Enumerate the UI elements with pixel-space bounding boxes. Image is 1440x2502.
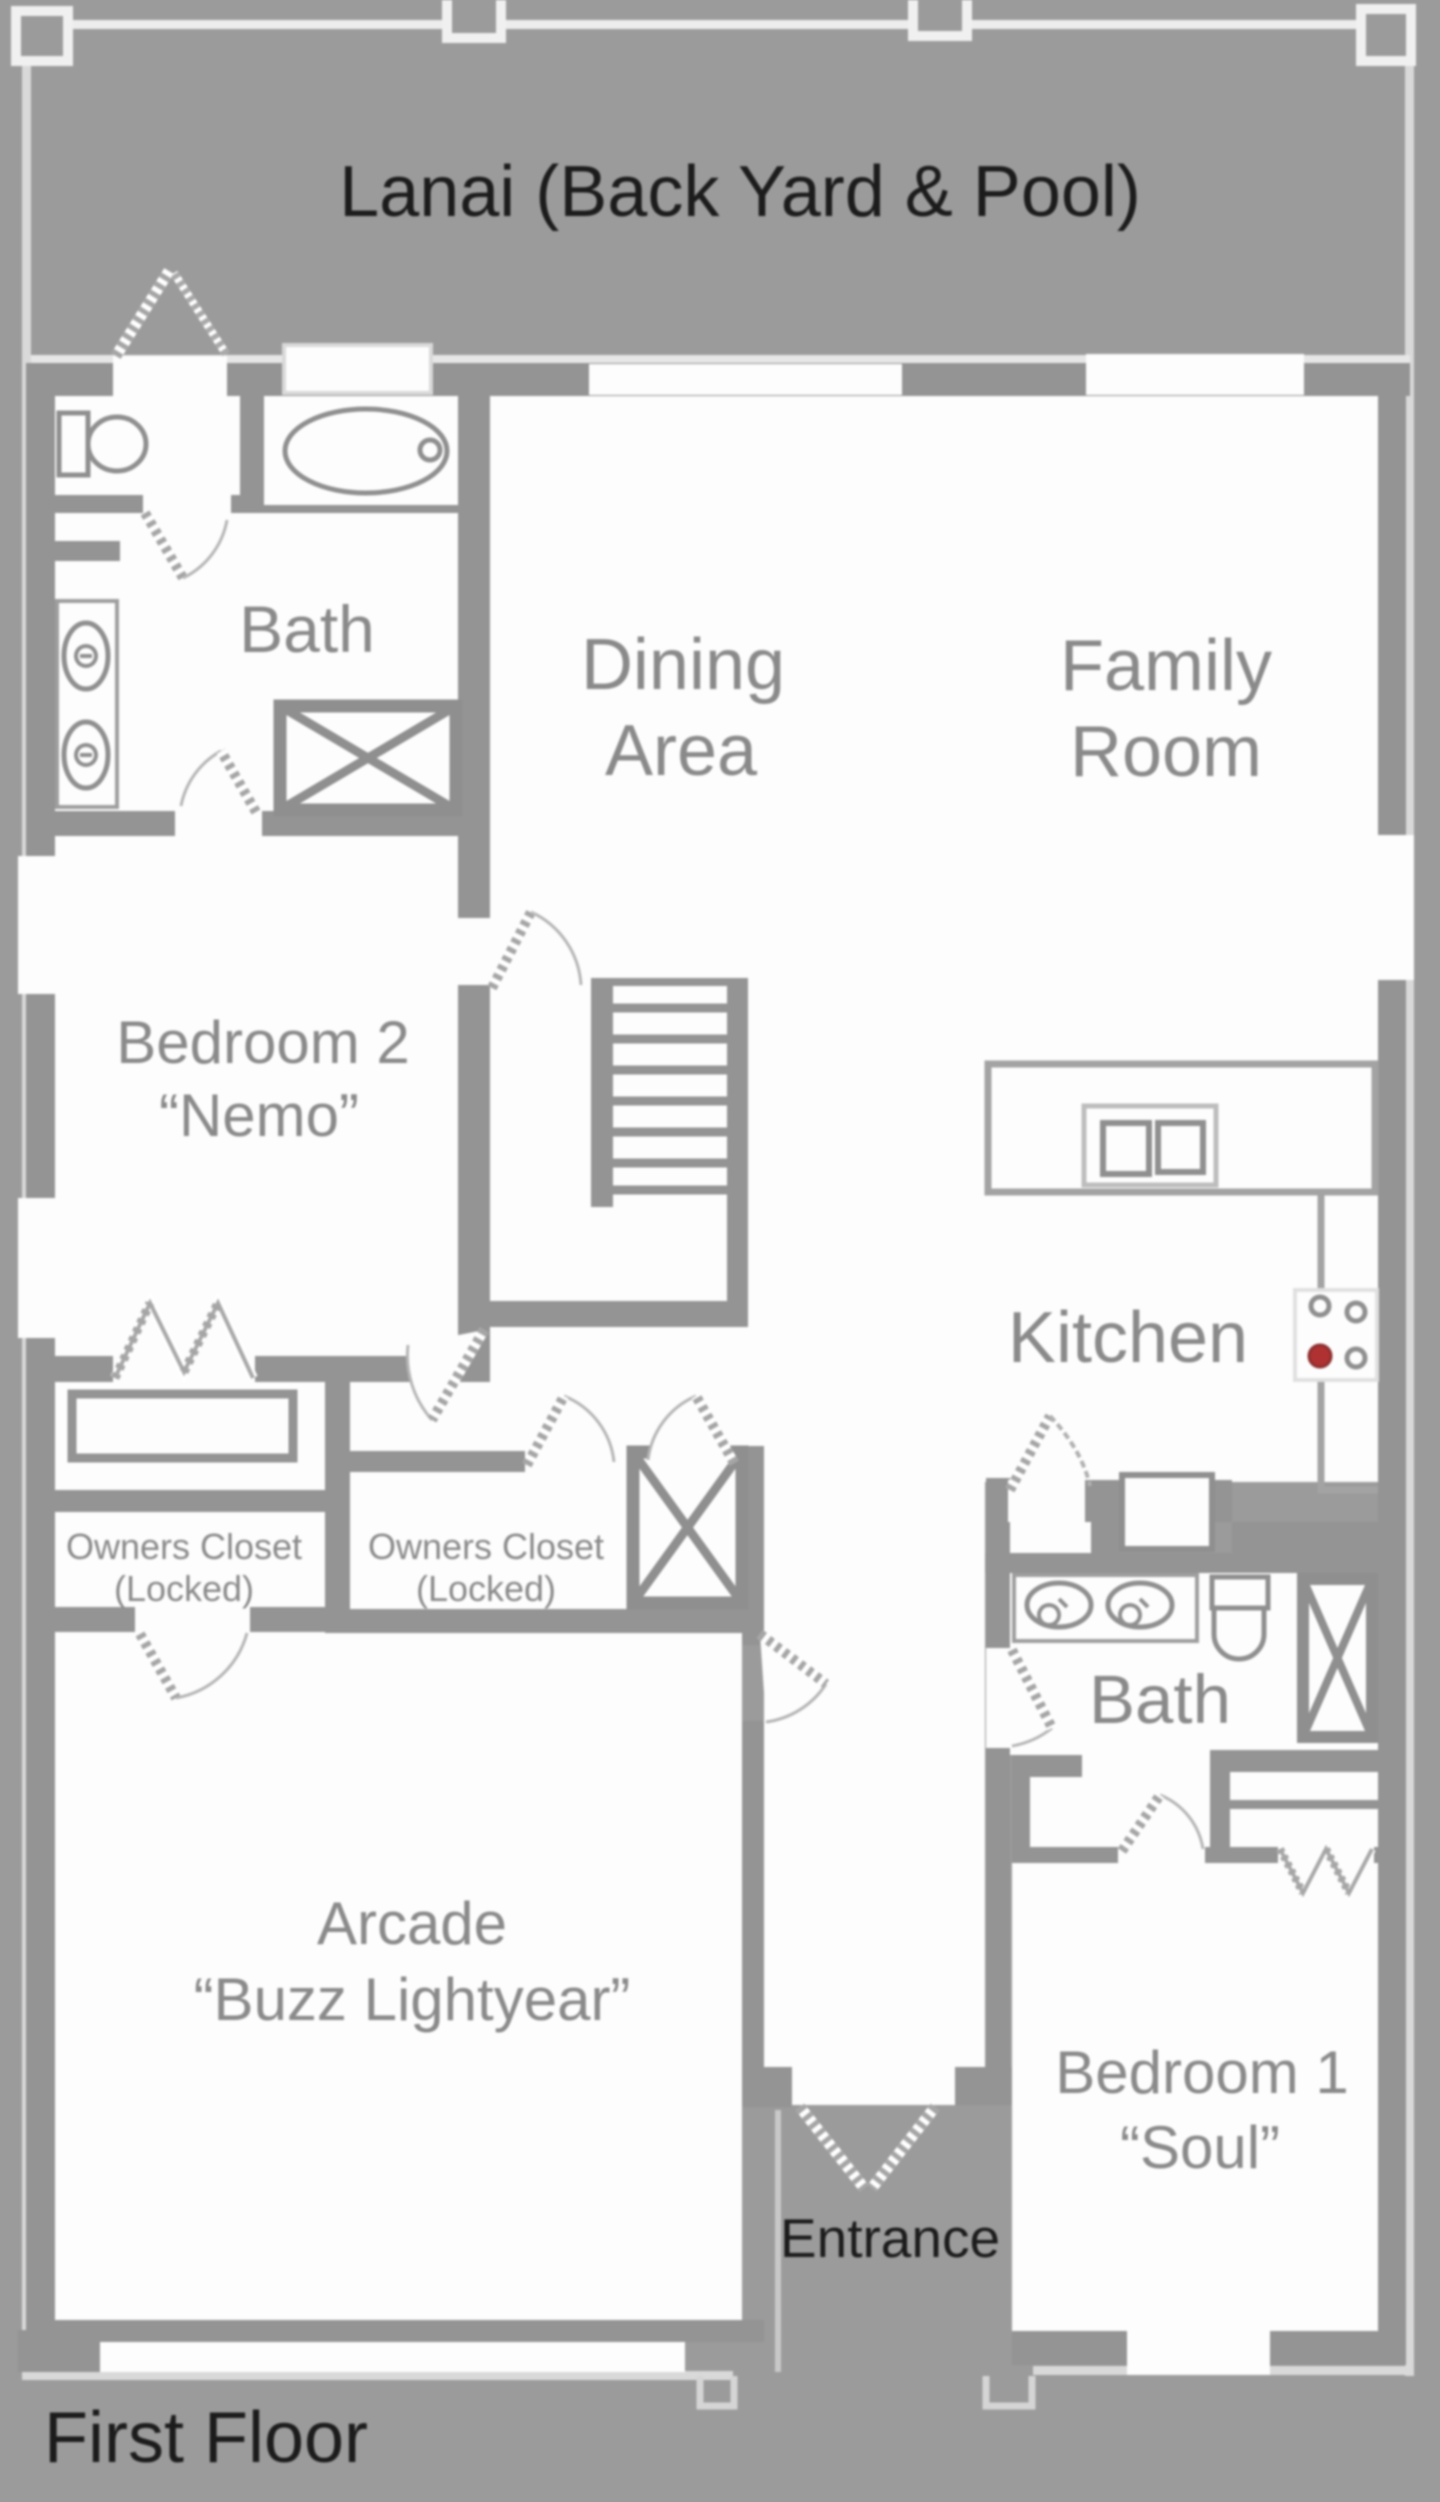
svg-text:Area: Area [605,711,758,791]
svg-text:(Locked): (Locked) [416,1568,556,1609]
svg-text:Bedroom 2: Bedroom 2 [116,1009,410,1076]
svg-text:Owners Closet: Owners Closet [66,1526,302,1567]
svg-text:(Locked): (Locked) [114,1568,254,1609]
svg-text:Bath: Bath [1089,1661,1231,1738]
svg-text:Arcade: Arcade [317,1890,507,1957]
svg-text:Kitchen: Kitchen [1008,1298,1248,1378]
svg-text:Bath: Bath [239,592,375,666]
svg-text:“Soul”: “Soul” [1120,2114,1280,2181]
svg-text:Entrance: Entrance [780,2207,1000,2269]
svg-text:Lanai (Back Yard & Pool): Lanai (Back Yard & Pool) [339,152,1141,232]
svg-text:“Nemo”: “Nemo” [159,1082,359,1149]
svg-text:Family: Family [1060,626,1272,706]
svg-text:Owners Closet: Owners Closet [368,1526,604,1567]
svg-text:First Floor: First Floor [44,2398,368,2478]
svg-text:Dining: Dining [581,625,785,705]
svg-text:Room: Room [1070,712,1262,792]
svg-text:Bedroom 1: Bedroom 1 [1055,2039,1349,2106]
svg-text:“Buzz Lightyear”: “Buzz Lightyear” [194,1966,631,2033]
